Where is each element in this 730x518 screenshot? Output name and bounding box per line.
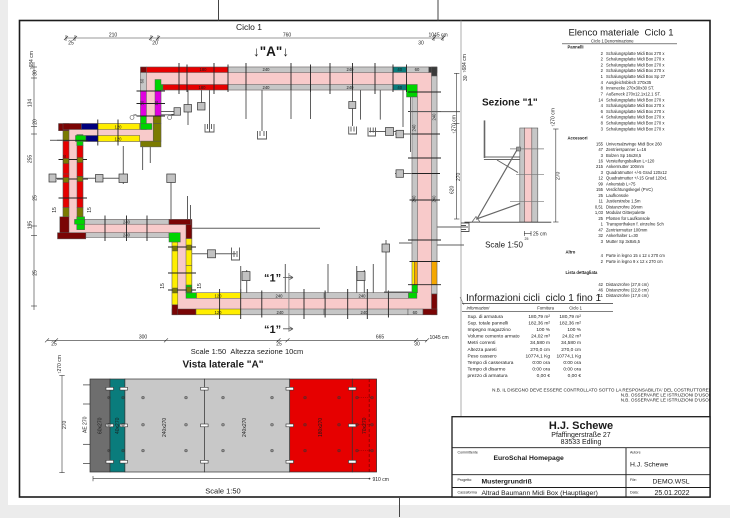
svg-text:Ciclo 1: Ciclo 1 [591,38,604,43]
svg-text:Altro: Altro [566,250,576,255]
svg-text:620: 620 [450,185,456,194]
svg-text:30: 30 [33,70,39,76]
svg-text:20: 20 [33,119,39,125]
svg-text:182,36 m²: 182,36 m² [559,321,581,327]
svg-text:Laufkonsole: Laufkonsole [606,193,629,198]
svg-text:Pannelli: Pannelli [568,44,584,49]
svg-text:Lista dettagliata: Lista dettagliata [566,270,599,275]
svg-text:1045 cm: 1045 cm [429,33,448,39]
svg-text:12: 12 [598,176,603,181]
svg-text:240x270: 240x270 [162,418,168,437]
svg-text:120: 120 [115,125,123,130]
svg-text:Schalungsplatte Midi Box 270 x: Schalungsplatte Midi Box 270 x [606,121,665,126]
svg-text:24,02 m³: 24,02 m³ [562,334,581,340]
svg-text:240: 240 [123,233,131,238]
svg-text:AE 270: AE 270 [83,416,89,433]
svg-text:40: 40 [397,67,402,72]
svg-text:Altezza pareti: Altezza pareti [468,347,497,353]
svg-text:270,0 cm: 270,0 cm [561,347,581,353]
svg-text:Distanzrohre 26mm: Distanzrohre 26mm [606,204,643,209]
svg-text:0:00 ora: 0:00 ora [532,360,550,366]
svg-text:Cassaforma: Cassaforma [458,490,477,494]
svg-text:↓"A"↓: ↓"A"↓ [253,44,289,59]
svg-text:Ausgleichsblech 270x35: Ausgleichsblech 270x35 [606,80,652,85]
svg-text:60x270: 60x270 [98,417,104,434]
svg-text:25: 25 [598,193,603,198]
svg-text:255: 255 [28,155,34,164]
svg-text:Innenecke 270x30x30 ST.: Innenecke 270x30x30 ST. [606,86,654,91]
svg-text:Modular Gitterpalette: Modular Gitterpalette [606,210,646,215]
svg-text:File:: File: [630,478,637,482]
svg-text:30: 30 [414,342,420,348]
svg-text:665: 665 [376,335,385,341]
svg-text:↑270 cm: ↑270 cm [57,355,63,374]
svg-text:270: 270 [456,172,462,181]
svg-text:0,00 €: 0,00 € [568,373,582,379]
svg-text:Altrad Baumann Midi Box (Haupt: Altrad Baumann Midi Box (Hauptlager) [482,490,598,497]
svg-text:Sezione "1": Sezione "1" [482,98,538,109]
svg-text:Ankerhalter L=30: Ankerhalter L=30 [606,233,639,238]
svg-text:46: 46 [598,288,603,293]
svg-text:15: 15 [160,283,166,289]
svg-text:50: 50 [140,100,145,105]
svg-text:270,0 cm: 270,0 cm [530,347,550,353]
svg-text:“1”: “1” [264,324,281,336]
svg-text:Distanzrohre (22,8 cm): Distanzrohre (22,8 cm) [606,288,649,293]
svg-text:240x270: 240x270 [242,418,248,437]
svg-text:Informazioni: Informazioni [467,306,491,311]
svg-text:Schalungsplatte Midi Box 270 x: Schalungsplatte Midi Box 270 x [606,51,665,56]
svg-text:910 cm: 910 cm [373,477,389,483]
svg-text:Impegno magazzino: Impegno magazzino [468,327,512,333]
svg-text:Ciclo 1: Ciclo 1 [569,306,582,311]
svg-text:240: 240 [347,67,355,72]
svg-text:0:00 ora: 0:00 ora [563,366,581,372]
svg-text:240: 240 [263,67,271,72]
svg-text:“1”: “1” [264,273,281,285]
svg-text:Pfaffingerstraße 27: Pfaffingerstraße 27 [551,432,611,439]
svg-text:240: 240 [432,113,437,121]
svg-text:Distanzrohre (27,8 cm): Distanzrohre (27,8 cm) [606,282,649,287]
svg-text:Tempo di casseratura: Tempo di casseratura [468,360,514,366]
svg-text:240: 240 [412,124,417,132]
svg-text:240: 240 [359,293,367,298]
svg-text:215: 215 [596,164,604,169]
svg-text:25: 25 [68,41,74,47]
svg-text:30: 30 [418,41,424,47]
svg-text:↑270 cm: ↑270 cm [551,108,557,127]
svg-text:Mutter Sp 3x8x5,5: Mutter Sp 3x8x5,5 [606,239,641,244]
svg-text:47: 47 [598,147,603,152]
svg-text:25: 25 [51,342,57,348]
svg-text:Mustergrundriß: Mustergrundriß [482,479,532,486]
svg-text:1045 cm: 1045 cm [430,335,449,341]
svg-text:Parte in legno 15 x 12 x 270 c: Parte in legno 15 x 12 x 270 cm [606,253,665,258]
svg-text:155: 155 [596,141,604,146]
svg-text:40: 40 [397,85,402,90]
svg-text:120: 120 [215,293,223,298]
svg-text:Parte in legno 9 x 12 x 270 cm: Parte in legno 9 x 12 x 270 cm [606,259,663,264]
svg-text:Ankerstab L=75: Ankerstab L=75 [606,181,636,186]
svg-text:99: 99 [598,181,603,186]
svg-text:20: 20 [152,41,158,47]
svg-text:Schalungsplatte Midi Box 270 x: Schalungsplatte Midi Box 270 x [606,68,665,73]
svg-text:Schalungsplatte Midi Box 270 x: Schalungsplatte Midi Box 270 x [606,115,665,120]
svg-text:Data:: Data: [630,490,639,494]
svg-text:240: 240 [361,310,369,315]
svg-text:25 cm: 25 cm [533,232,547,238]
svg-text:120: 120 [215,310,223,315]
svg-text:15: 15 [197,283,203,289]
svg-text:Schalungsplatte Midi Box 270 x: Schalungsplatte Midi Box 270 x [606,126,665,131]
svg-text:155: 155 [596,187,604,192]
svg-text:0,00 €: 0,00 € [537,373,551,379]
svg-text:60: 60 [413,310,418,315]
svg-text:24,02 m³: 24,02 m³ [531,334,550,340]
svg-text:42: 42 [598,282,603,287]
svg-text:32: 32 [598,233,603,238]
svg-text:Informazioni cicli ciclo 1 fi: Informazioni cicli ciclo 1 fino 1 [466,293,601,304]
svg-text:Außeneck 270x12.1x12.1 ST.: Außeneck 270x12.1x12.1 ST. [606,92,661,97]
svg-text:180x270: 180x270 [318,418,324,437]
svg-text:10774,1 Kg: 10774,1 Kg [556,353,581,359]
svg-text:240: 240 [277,310,285,315]
svg-text:60: 60 [140,78,145,83]
svg-text:15: 15 [52,207,58,213]
svg-text:25.01.2022: 25.01.2022 [655,490,690,497]
svg-text:H.J. Schewe: H.J. Schewe [630,461,668,468]
svg-text:15: 15 [87,207,93,213]
svg-text:Volume cemento armato: Volume cemento armato [468,334,520,340]
svg-text:Universalzwinge Midi Box 260: Universalzwinge Midi Box 260 [606,141,663,146]
svg-text:240: 240 [432,195,437,203]
svg-text:182,36 m²: 182,36 m² [528,321,550,327]
svg-text:Accessori: Accessori [568,136,588,141]
svg-text:Schalungsplatte Midi Box 270 x: Schalungsplatte Midi Box 270 x [606,57,665,62]
svg-text:Schalungsplatte Midi Box 270 x: Schalungsplatte Midi Box 270 x [606,109,665,114]
svg-text:180: 180 [199,85,207,90]
svg-text:Ankermutter 100mm: Ankermutter 100mm [606,164,644,169]
svg-text:30: 30 [463,75,469,81]
svg-text:EuroSchal Homepage: EuroSchal Homepage [494,455,564,462]
svg-text:195: 195 [28,221,34,230]
svg-text:DEMO.WSL: DEMO.WSL [653,479,690,486]
svg-text:100 %: 100 % [567,327,581,333]
svg-text:16: 16 [598,159,603,164]
svg-text:60: 60 [415,67,420,72]
svg-text:Elenco materiale Ciclo 1: Elenco materiale Ciclo 1 [568,28,673,39]
svg-text:Pfosten für Laufkonsole: Pfosten für Laufkonsole [606,216,651,221]
svg-text:↑684 cm: ↑684 cm [29,51,35,70]
svg-text:Metri correnti: Metri correnti [468,340,496,346]
svg-text:270: 270 [556,171,562,180]
svg-text:270: 270 [62,420,68,429]
svg-text:100 %: 100 % [536,327,550,333]
svg-text:134: 134 [28,99,34,108]
svg-text:Peso cassero: Peso cassero [468,353,497,359]
svg-text:Progetto:: Progetto: [458,478,473,482]
svg-text:Transporthaken f. einzelne Sch: Transporthaken f. einzelne Sch [606,222,664,227]
svg-text:Committente: Committente [458,450,478,454]
svg-text:Zentriermutter 100mm: Zentriermutter 100mm [606,227,648,232]
svg-text:prezzo di armatura: prezzo di armatura [468,373,508,379]
svg-text:0:00 ora: 0:00 ora [532,366,550,372]
svg-text:Schalungsplatte Midi Box Sp 27: Schalungsplatte Midi Box Sp 27 [606,74,666,79]
svg-text:Sup. totale pannelli: Sup. totale pannelli [468,321,509,327]
svg-text:240: 240 [276,293,284,298]
svg-text:Bolzen Sp 16x28,5: Bolzen Sp 16x28,5 [606,153,642,158]
svg-text:10774,1 Kg: 10774,1 Kg [525,353,550,359]
svg-text:Schalungsplatte Midi Box 270 x: Schalungsplatte Midi Box 270 x [606,97,665,102]
svg-text:34,580 m: 34,580 m [530,340,550,346]
svg-text:760: 760 [283,33,292,39]
svg-text:↑684 cm: ↑684 cm [462,54,468,73]
svg-text:Scale 1:50 Altezza sezione 10: Scale 1:50 Altezza sezione 10cm [191,347,304,356]
svg-text:11: 11 [599,199,604,204]
svg-text:14: 14 [598,97,603,102]
svg-text:25: 25 [33,270,39,276]
svg-text:Tempo di disarmo: Tempo di disarmo [468,366,506,372]
svg-text:Scale 1:50: Scale 1:50 [205,487,240,496]
svg-text:Verdichtungskegel (PVC): Verdichtungskegel (PVC) [606,187,653,192]
svg-text:Denominazione: Denominazione [605,38,635,43]
svg-text:Sup. di armatura: Sup. di armatura [468,314,504,320]
svg-text:300: 300 [139,335,148,341]
svg-text:25: 25 [525,237,529,241]
svg-text:Vista laterale "A": Vista laterale "A" [182,360,263,371]
svg-text:47: 47 [598,227,603,232]
svg-text:Zentrierspanner L=16: Zentrierspanner L=16 [606,147,647,152]
svg-text:1,03: 1,03 [595,210,604,215]
svg-text:0:00 ora: 0:00 ora [563,360,581,366]
svg-text:Schalungsplatte Midi Box 270 x: Schalungsplatte Midi Box 270 x [606,103,665,108]
svg-text:0,51: 0,51 [595,204,604,209]
svg-text:240: 240 [347,85,355,90]
svg-text:180,79 m²: 180,79 m² [559,314,581,320]
svg-text:N.B. OSSERVARE LE ISTRUZIONI D: N.B. OSSERVARE LE ISTRUZIONI D'USO! [621,398,710,403]
svg-text:25: 25 [33,195,39,201]
svg-text:120: 120 [115,137,123,142]
svg-text:83533 Edling: 83533 Edling [561,439,602,446]
svg-text:34,580 m: 34,580 m [561,340,581,346]
svg-text:Scale 1:50: Scale 1:50 [485,241,523,250]
svg-text:Schalungsplatte Midi Box 270 x: Schalungsplatte Midi Box 270 x [606,62,665,67]
svg-text:50: 50 [154,100,159,105]
svg-text:Versteifungsbalken L=120: Versteifungsbalken L=120 [606,159,655,164]
svg-text:↑270 cm: ↑270 cm [452,115,458,134]
svg-text:180: 180 [200,67,208,72]
svg-text:240: 240 [263,85,271,90]
svg-text:Quadratmutter +/-5 Grad 120x12: Quadratmutter +/-5 Grad 120x12 [606,170,668,175]
svg-text:240: 240 [123,219,131,224]
svg-text:210: 210 [109,33,118,39]
svg-text:Autore: Autore [630,450,641,454]
svg-text:Ciclo 1: Ciclo 1 [236,22,262,32]
svg-text:Fornitura: Fornitura [537,306,554,311]
svg-text:H.J. Schewe: H.J. Schewe [549,420,613,432]
svg-text:Justierstrebe 1,5m: Justierstrebe 1,5m [606,199,641,204]
svg-text:Distanzrohre (17,8 cm): Distanzrohre (17,8 cm) [606,293,649,298]
svg-text:70x270: 70x270 [362,417,368,434]
svg-text:240: 240 [412,195,417,203]
svg-text:180,79 m²: 180,79 m² [528,314,550,320]
svg-text:Quadratmutter +/-15 Grad 120x1: Quadratmutter +/-15 Grad 120x1 [606,176,668,181]
svg-text:25: 25 [598,216,603,221]
